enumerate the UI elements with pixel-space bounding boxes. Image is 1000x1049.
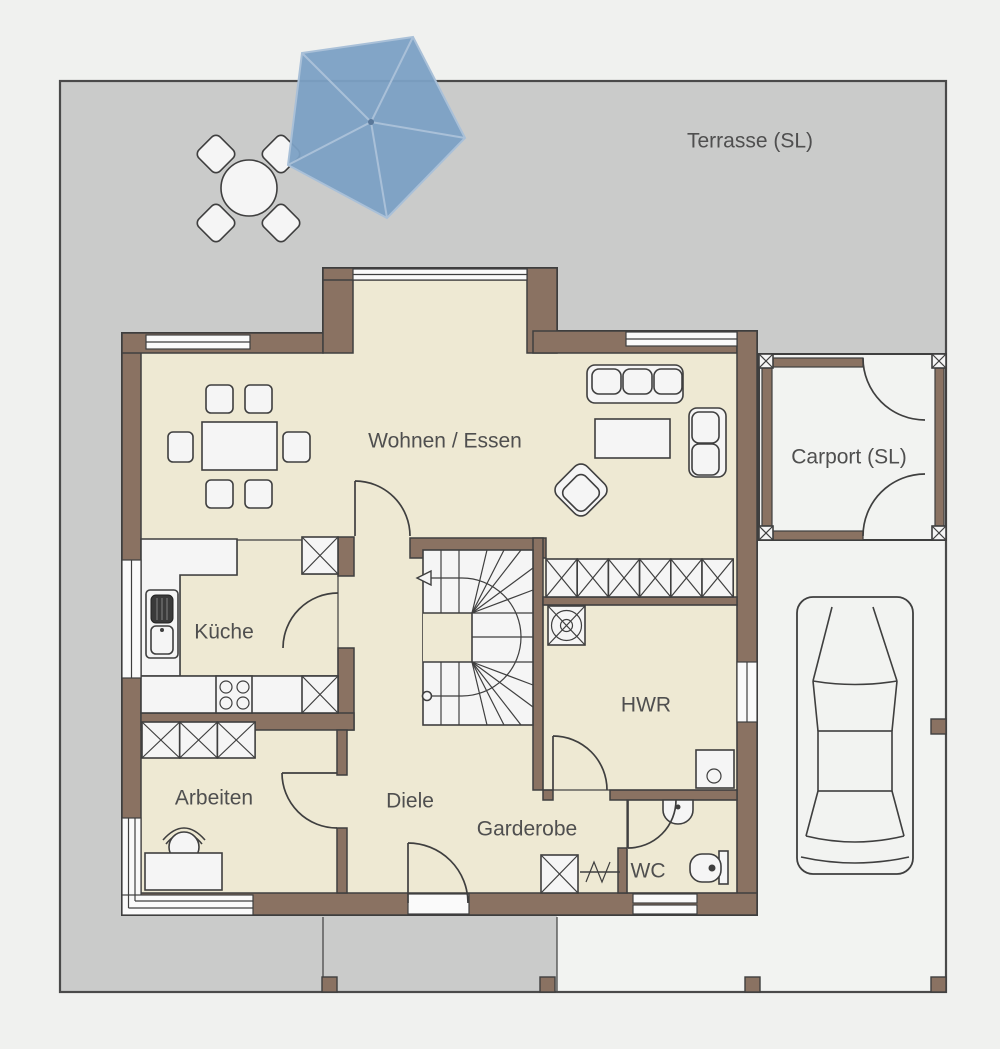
carport-beam-right xyxy=(935,368,944,526)
room-label-garderobe: Garderobe xyxy=(477,818,577,841)
wardrobe-row-arbeiten xyxy=(142,722,255,758)
stair-start-marker xyxy=(423,692,432,701)
wall-kitchen-right-upper xyxy=(338,537,354,576)
sofa-2seat-icon xyxy=(689,408,726,477)
window-wc-b xyxy=(633,905,697,914)
coffee-table-icon xyxy=(595,419,670,458)
fence-post-icon xyxy=(745,977,760,992)
washing-machine-icon xyxy=(696,750,734,788)
desk-icon xyxy=(145,853,222,890)
wardrobe-row-wohnen xyxy=(546,559,733,597)
chimney-icon xyxy=(548,606,585,645)
sink-unit-icon xyxy=(146,590,178,658)
window-wc-a xyxy=(633,894,697,903)
toilet-icon xyxy=(690,851,728,884)
wall-hwr-top xyxy=(543,597,737,605)
carport-beam-top xyxy=(773,358,863,367)
stairs-icon xyxy=(417,550,533,725)
room-label-diele: Diele xyxy=(386,790,434,813)
wall-hwr-bottom-stub xyxy=(543,790,553,800)
dining-chair-icon xyxy=(245,385,272,413)
dining-chair-icon xyxy=(245,480,272,508)
floor-plan-canvas: Terrasse (SL) Wohnen / Essen Carport (SL… xyxy=(0,0,1000,1049)
wall-right xyxy=(737,331,757,915)
carport-beam-bottom xyxy=(773,531,863,540)
room-label-arbeiten: Arbeiten xyxy=(175,787,253,810)
dining-chair-icon xyxy=(168,432,193,462)
room-label-hwr: HWR xyxy=(621,694,671,717)
entry-threshold xyxy=(408,894,469,914)
path-area xyxy=(557,915,757,992)
floor-plan-drawing: Terrasse (SL) Wohnen / Essen Carport (SL… xyxy=(0,0,1000,1049)
wall-arbeiten-upper xyxy=(337,730,347,775)
fence-post-icon xyxy=(322,977,337,992)
stove-icon xyxy=(216,676,252,713)
wall-garderobe-wc xyxy=(618,848,627,893)
dining-chair-icon xyxy=(206,480,233,508)
sofa-3seat-icon xyxy=(587,365,683,403)
dining-chair-icon xyxy=(283,432,310,462)
wall-arbeiten-lower xyxy=(337,828,347,893)
room-label-kueche: Küche xyxy=(194,621,254,644)
fence-post-icon xyxy=(931,719,946,734)
fence-post-icon xyxy=(540,977,555,992)
dining-chair-icon xyxy=(206,385,233,413)
washbasin-icon xyxy=(663,800,693,824)
wall-hwr-wc-bottom xyxy=(610,790,737,800)
wall-stairs-west xyxy=(533,538,543,790)
dining-table-icon xyxy=(202,422,277,470)
stair-void xyxy=(423,613,472,662)
patio-table-icon xyxy=(221,160,277,216)
room-label-wc: WC xyxy=(631,860,666,883)
room-label-wohnen-essen: Wohnen / Essen xyxy=(368,430,522,453)
room-label-carport: Carport (SL) xyxy=(791,446,907,469)
wardrobe-garderobe xyxy=(541,855,578,893)
fence-post-icon xyxy=(931,977,946,992)
room-label-terrasse: Terrasse (SL) xyxy=(687,130,813,153)
carport-beam-left xyxy=(762,368,772,526)
